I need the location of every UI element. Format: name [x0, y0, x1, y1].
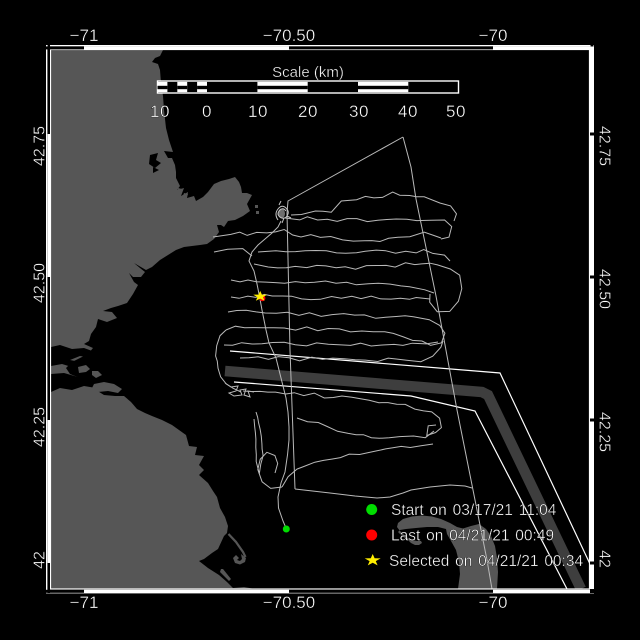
- svg-text:42.50: 42.50: [596, 269, 613, 309]
- svg-text:42.50: 42.50: [32, 263, 49, 303]
- svg-text:Selected on 04/21/21 00:34: Selected on 04/21/21 00:34: [389, 553, 583, 570]
- svg-text:−70: −70: [479, 593, 508, 612]
- svg-text:42: 42: [596, 550, 613, 568]
- svg-text:20: 20: [298, 102, 318, 121]
- svg-text:42.25: 42.25: [596, 412, 613, 452]
- svg-text:Scale (km): Scale (km): [272, 64, 344, 81]
- svg-text:42.25: 42.25: [32, 407, 49, 447]
- svg-text:42.75: 42.75: [596, 126, 613, 166]
- svg-text:Last on 04/21/21 00:49: Last on 04/21/21 00:49: [391, 528, 554, 545]
- svg-text:−70: −70: [479, 26, 508, 45]
- svg-text:0: 0: [202, 102, 212, 121]
- svg-text:40: 40: [398, 102, 418, 121]
- svg-text:30: 30: [349, 102, 369, 121]
- svg-text:−70.50: −70.50: [263, 593, 315, 612]
- svg-text:42.75: 42.75: [32, 126, 49, 166]
- svg-text:−71: −71: [70, 593, 99, 612]
- svg-text:10: 10: [150, 102, 170, 121]
- svg-text:42: 42: [32, 551, 49, 569]
- svg-text:−71: −71: [70, 26, 99, 45]
- svg-text:−70.50: −70.50: [263, 26, 315, 45]
- svg-text:10: 10: [248, 102, 268, 121]
- svg-text:Start on 03/17/21 11:04: Start on 03/17/21 11:04: [391, 502, 557, 519]
- svg-text:50: 50: [446, 102, 466, 121]
